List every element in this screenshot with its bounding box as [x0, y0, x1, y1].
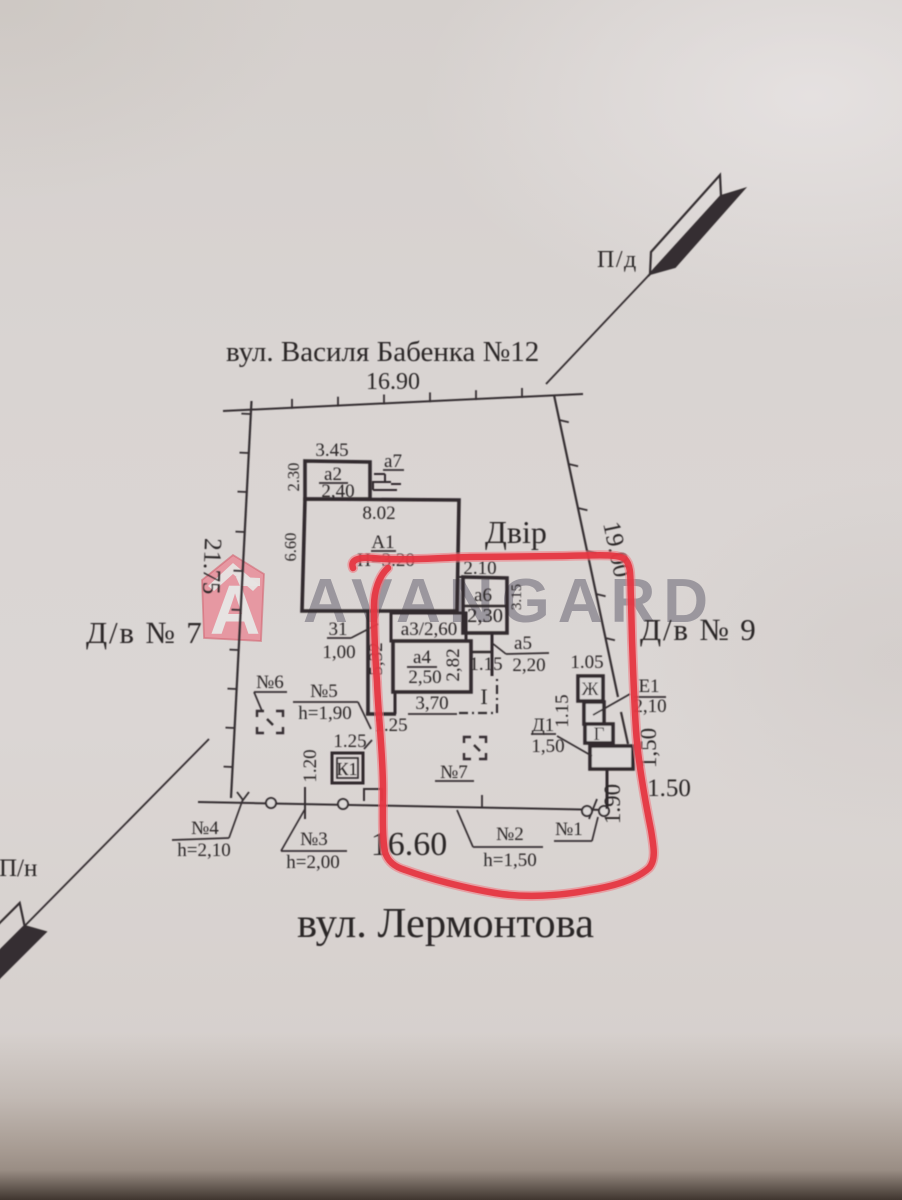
svg-text:h=2,00: h=2,00	[286, 852, 339, 873]
svg-text:1,00: 1,00	[322, 642, 355, 663]
svg-text:№1: №1	[555, 819, 583, 840]
svg-text:1.05: 1.05	[570, 652, 603, 673]
svg-text:2,30: 2,30	[467, 605, 503, 627]
svg-text:1,50: 1,50	[531, 736, 564, 757]
svg-text:1.50: 1.50	[647, 775, 691, 802]
svg-text:І: І	[480, 684, 487, 709]
svg-text:К1: К1	[336, 759, 357, 779]
svg-text:а6: а6	[474, 585, 492, 606]
svg-text:1.15: 1.15	[469, 654, 502, 675]
svg-text:1.90: 1.90	[600, 784, 625, 824]
svg-text:h=1,90: h=1,90	[298, 703, 351, 724]
svg-text:2,20: 2,20	[512, 655, 545, 676]
svg-text:П/н: П/н	[0, 855, 37, 882]
svg-text:Г: Г	[594, 724, 605, 745]
svg-text:№2: №2	[496, 824, 524, 845]
svg-text:31: 31	[329, 619, 348, 640]
svg-text:h=1,50: h=1,50	[483, 850, 536, 871]
svg-text:а7: а7	[384, 451, 402, 472]
svg-text:6.60: 6.60	[281, 533, 300, 562]
svg-text:2.30: 2.30	[284, 463, 303, 492]
svg-text:а4: а4	[413, 647, 431, 668]
svg-text:21.75: 21.75	[197, 538, 226, 595]
svg-text:2,50: 2,50	[408, 667, 441, 688]
svg-text:3.15: 3.15	[509, 584, 525, 610]
svg-text:Д/в № 7: Д/в № 7	[86, 615, 204, 650]
svg-text:Е1: Е1	[638, 676, 659, 697]
svg-text:№4: №4	[191, 818, 219, 839]
svg-text:№6: №6	[256, 672, 284, 693]
svg-text:П/д: П/д	[597, 247, 638, 273]
svg-text:а5: а5	[514, 633, 532, 654]
svg-text:№7: №7	[440, 762, 468, 783]
svg-text:1.15: 1.15	[552, 694, 573, 727]
svg-text:Д/в № 9: Д/в № 9	[640, 612, 758, 647]
svg-text:3.45: 3.45	[315, 440, 348, 461]
svg-text:Ж: Ж	[581, 679, 599, 700]
svg-text:а3/2,60: а3/2,60	[401, 619, 457, 640]
svg-text:1.20: 1.20	[300, 749, 321, 782]
svg-text:2,82: 2,82	[443, 648, 464, 681]
svg-text:вул. Лермонтова: вул. Лермонтова	[297, 900, 594, 947]
svg-text:№3: №3	[300, 829, 328, 850]
svg-text:3,70: 3,70	[415, 693, 448, 714]
svg-text:Двір: Двір	[485, 514, 547, 550]
svg-text:вул. Василя Бабенка №12: вул. Василя Бабенка №12	[226, 336, 539, 368]
svg-text:2,40: 2,40	[321, 481, 354, 502]
svg-text:1.25: 1.25	[333, 731, 366, 752]
svg-text:16.90: 16.90	[366, 369, 420, 395]
svg-text:Д1: Д1	[532, 715, 554, 736]
svg-text:8.02: 8.02	[362, 503, 395, 524]
svg-text:h=2,10: h=2,10	[177, 840, 230, 861]
svg-text:№5: №5	[310, 681, 338, 702]
